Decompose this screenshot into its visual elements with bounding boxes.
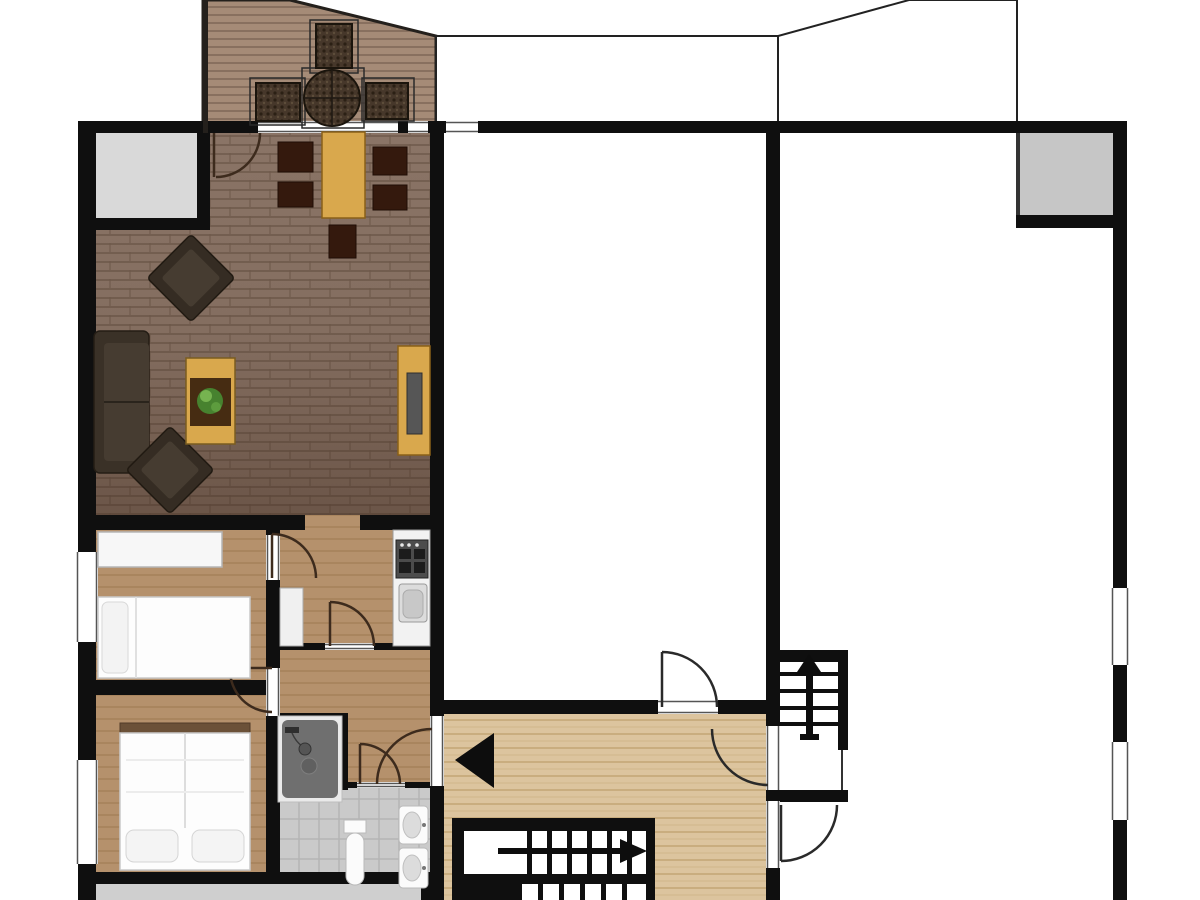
passage-living-kitchen [305, 515, 360, 530]
main-stairs-tread-lower [538, 884, 543, 900]
storage-room-floor [96, 133, 197, 218]
shower-head [299, 743, 311, 755]
wall-storage-bottom [96, 218, 210, 230]
wall-graysquare-left-thin [1016, 133, 1020, 215]
stove-burner [399, 562, 411, 573]
wall-stairroom-right [838, 650, 848, 750]
terrace-left [436, 36, 778, 133]
stairwell-up-arrow-base [800, 734, 819, 740]
shower-bracket [285, 727, 299, 733]
doorgap-stairwell [766, 726, 780, 790]
stove-burner [414, 549, 425, 559]
opening-top-window-1 [408, 121, 428, 133]
bed-double-pillow [192, 830, 244, 862]
stove-burner [399, 549, 411, 559]
deck-wicker-chair-left [256, 83, 300, 121]
window-bedroom2 [76, 760, 98, 864]
main-stairs-tread-lower [559, 884, 564, 900]
deck-wicker-chair-right [366, 83, 408, 119]
bed-double-pillow [126, 830, 178, 862]
main-stairs-tread-lower [622, 884, 627, 900]
doorgap-right-unit [766, 801, 780, 868]
plant-highlight [211, 402, 221, 412]
floorplan-page [0, 0, 1200, 900]
main-stairs-tread-lower [601, 884, 606, 900]
middle-unit-floor [444, 133, 766, 700]
wall-top [78, 121, 1127, 133]
bath-sink-faucet [422, 866, 426, 870]
main-stairs-tread-lower [517, 884, 522, 900]
window-right-unit-1 [1111, 588, 1129, 665]
window-bedroom1 [76, 552, 98, 642]
stove-knob [415, 543, 419, 547]
stairwell-up-arrow-shaft [806, 675, 813, 737]
kitchen-sink-basin [403, 590, 423, 618]
main-stairs-arrow-shaft [498, 848, 620, 854]
doorgap-kitchen [325, 643, 374, 650]
floorplan-drawing [0, 0, 1200, 900]
main-stairs-wall-left [452, 818, 464, 900]
opening-top-window-2 [446, 121, 478, 133]
toilet-bowl [346, 833, 364, 885]
bath-sink-basin [403, 855, 421, 881]
balcony-floor [96, 884, 421, 900]
main-stairs-tread-lower [580, 884, 585, 900]
doorgap-bathroom [357, 782, 405, 788]
bed-single-pillow [102, 602, 128, 673]
stove-knob [407, 543, 411, 547]
doorgap-middle-unit [658, 700, 718, 714]
kitchen-fridge [280, 588, 303, 646]
main-stairs-divider [464, 874, 646, 884]
wall-storage-right [197, 133, 210, 230]
sideboard-tv [407, 373, 422, 434]
plant-highlight [200, 390, 212, 402]
dining-chair [278, 182, 313, 207]
doorgap-entry [430, 716, 444, 786]
stove-knob [400, 543, 404, 547]
doorgap-bedroom2 [266, 668, 280, 716]
wall-graysquare-bottom [1016, 215, 1113, 228]
main-stairs-corner-block [464, 884, 517, 900]
wall-bottom [78, 872, 436, 884]
toilet-tank [344, 820, 366, 833]
terrace-right [778, 0, 1017, 133]
main-stairs-wall-top [452, 818, 655, 831]
main-stairs-wall-right [646, 818, 655, 900]
wall-stairroom-right-thin [841, 750, 843, 792]
dining-table [322, 132, 365, 218]
gray-square-room [1016, 133, 1113, 215]
dining-chair [278, 142, 313, 172]
dining-chair [373, 185, 407, 210]
wall-stairroom-bottom [766, 790, 848, 802]
bath-sink-basin [403, 812, 421, 838]
wardrobe [98, 532, 222, 567]
stove-burner [414, 562, 425, 573]
deck-left-edge [203, 0, 208, 133]
bed-double-headboard [120, 723, 250, 733]
wall-living-bottom [96, 515, 430, 530]
dining-chair [373, 147, 407, 175]
bath-sink-faucet [422, 823, 426, 827]
window-right-unit-2 [1111, 742, 1129, 820]
shower-drain [301, 758, 317, 774]
dining-chair [329, 225, 356, 258]
deck-wicker-bench [316, 24, 352, 68]
